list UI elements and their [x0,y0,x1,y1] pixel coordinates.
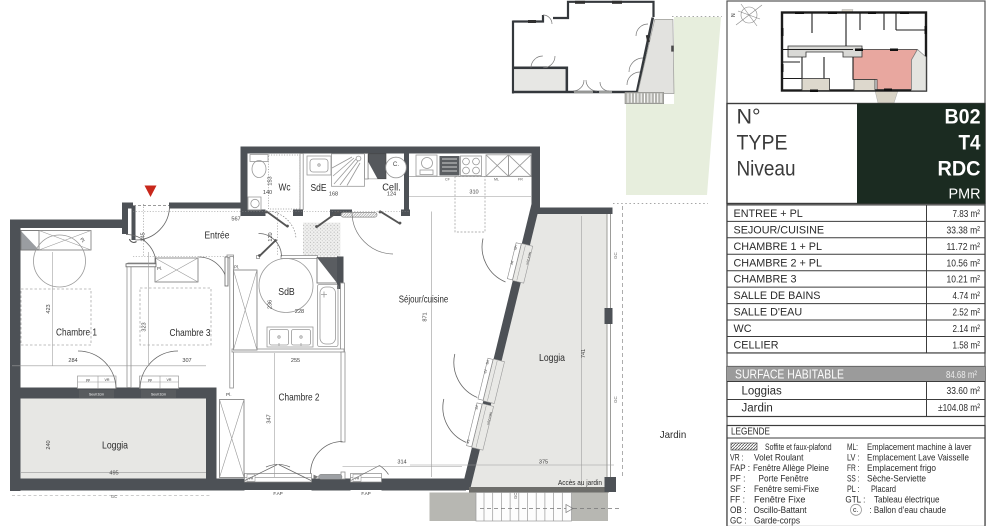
svg-text:236: 236 [268,300,274,309]
svg-text:Jardin: Jardin [660,429,687,441]
svg-text:375: 375 [539,460,548,466]
svg-text:SdE: SdE [311,182,327,194]
svg-text:F.AP: F.AP [361,491,370,496]
svg-text:Garde-corps: Garde-corps [754,515,800,525]
svg-text:Sèche-Serviette: Sèche-Serviette [867,474,926,484]
svg-text:LEGENDE: LEGENDE [731,426,770,438]
svg-text:GC: GC [613,251,618,259]
svg-text:±104.08 m²: ±104.08 m² [938,402,980,414]
svg-text:FR :: FR : [847,463,860,473]
svg-text:VR: VR [513,245,518,251]
svg-text:Accès au jardin: Accès au jardin [558,478,602,487]
svg-text:F.AP: F.AP [273,491,282,496]
svg-text:Wc: Wc [279,182,291,194]
svg-text:84.68 m²: 84.68 m² [946,370,978,381]
svg-text:VR :: VR : [730,453,744,463]
svg-text:N°: N° [737,105,761,129]
svg-text:FF: FF [483,369,488,374]
svg-text:VR: VR [167,378,172,382]
svg-text:GC: GC [111,494,117,499]
svg-text:Emplacement Lave Vaisselle: Emplacement Lave Vaisselle [867,453,969,463]
svg-text:Placard: Placard [871,484,896,494]
svg-text:GC: GC [613,395,618,403]
svg-text:SALLE D'EAU: SALLE D'EAU [734,307,803,319]
svg-text:314: 314 [397,460,406,466]
svg-text:GC :: GC : [730,515,747,525]
svg-text:GC: GC [513,493,518,499]
svg-text:PMR: PMR [949,186,981,203]
svg-text:SS :: SS : [847,474,860,484]
svg-text:423: 423 [46,304,52,313]
svg-text:PF: PF [474,405,479,410]
svg-text:c.: c. [853,507,859,514]
svg-text:LV :: LV : [847,453,860,463]
svg-text:10.56 m²: 10.56 m² [947,257,981,269]
svg-text:T4: T4 [959,131,981,155]
svg-text:153: 153 [268,176,274,185]
svg-text:10.21 m²: 10.21 m² [947,274,981,286]
svg-text:Pl.: Pl. [157,266,162,271]
svg-text:GTL :: GTL : [845,495,865,505]
svg-text:ML: ML [494,178,499,182]
svg-text:Chambre 1: Chambre 1 [56,327,97,339]
svg-text:Pl.: Pl. [226,392,232,398]
svg-text:N: N [731,13,737,17]
svg-text:4.74 m²: 4.74 m² [953,290,981,302]
svg-text:Séjour/cuisine: Séjour/cuisine [399,294,449,306]
svg-text:Seuil 2cm: Seuil 2cm [151,393,166,397]
svg-text:Fenêtre Fixe: Fenêtre Fixe [754,495,806,505]
svg-text:Volet Roulant: Volet Roulant [754,453,804,463]
svg-text:567: 567 [231,217,240,223]
svg-text:ENTREE + PL: ENTREE + PL [734,208,803,220]
svg-text:CELLIER: CELLIER [734,340,779,352]
svg-text:VR: VR [105,378,110,382]
svg-text:ML:: ML: [847,442,858,452]
svg-text:310: 310 [469,190,478,196]
svg-text:255: 255 [291,358,300,364]
svg-text:240: 240 [46,440,52,449]
svg-text:Tableau électrique: Tableau électrique [874,495,940,505]
svg-text:Loggia: Loggia [102,440,128,452]
svg-text:495: 495 [109,471,118,477]
svg-text:FAP :: FAP : [730,463,750,473]
svg-text:: Ballon d’eau chaude: : Ballon d’eau chaude [870,505,947,515]
svg-text:2.14 m²: 2.14 m² [953,323,981,335]
svg-text:CHAMBRE 3: CHAMBRE 3 [734,274,797,286]
svg-text:CHAMBRE 1 + PL: CHAMBRE 1 + PL [734,241,823,253]
svg-text:SURFACE HABITABLE: SURFACE HABITABLE [735,368,844,382]
svg-text:Niveau: Niveau [737,157,796,181]
svg-text:228: 228 [295,309,304,315]
svg-text:140: 140 [263,190,272,196]
svg-text:307: 307 [182,358,191,364]
svg-text:Cell.: Cell. [382,182,401,194]
svg-text:SF :: SF : [730,484,746,494]
svg-text:pp: pp [86,378,90,382]
svg-text:Pl.: Pl. [234,265,239,270]
svg-text:VR: VR [485,359,490,365]
svg-text:RDC: RDC [938,157,981,181]
svg-text:741: 741 [581,349,587,358]
svg-text:347: 347 [267,414,273,423]
svg-text:7.83 m²: 7.83 m² [953,208,981,220]
svg-text:1.58 m²: 1.58 m² [953,340,981,352]
svg-text:145: 145 [141,232,147,241]
svg-text:Chambre 2: Chambre 2 [279,392,320,404]
svg-text:OB :: OB : [730,505,747,515]
svg-text:PL :: PL : [847,484,860,494]
svg-text:TYPE: TYPE [737,131,788,155]
svg-text:FR: FR [518,178,523,182]
svg-text:168: 168 [329,192,338,198]
svg-text:Emplacement frigo: Emplacement frigo [867,463,936,473]
svg-text:CHAMBRE 2 + PL: CHAMBRE 2 + PL [734,257,823,269]
svg-text:Fenêtre Allège Pleine: Fenêtre Allège Pleine [753,463,829,473]
svg-text:120: 120 [268,232,274,241]
svg-text:Emplacement machine à laver: Emplacement machine à laver [867,442,972,452]
svg-text:Jardin: Jardin [742,403,773,415]
svg-text:SdB: SdB [278,286,295,298]
svg-text:11.72 m²: 11.72 m² [947,241,981,253]
svg-text:33.60 m²: 33.60 m² [947,385,981,397]
svg-text:Fenêtre semi-Fixe: Fenêtre semi-Fixe [754,484,819,494]
svg-text:FF :: FF : [730,495,745,505]
svg-text:C.: C. [393,161,399,168]
svg-text:2.52 m²: 2.52 m² [953,307,981,319]
svg-text:323: 323 [142,322,148,331]
svg-text:284: 284 [68,358,77,364]
svg-text:B02: B02 [945,105,981,129]
svg-text:CF: CF [445,178,451,182]
svg-text:Chambre 3: Chambre 3 [170,327,211,339]
svg-text:871: 871 [423,312,429,321]
svg-text:SEJOUR/CUISINE: SEJOUR/CUISINE [734,224,825,236]
svg-text:Loggias: Loggias [742,386,783,398]
svg-text:SALLE DE BAINS: SALLE DE BAINS [734,290,821,302]
svg-text:Porte Fenêtre: Porte Fenêtre [759,474,809,484]
svg-text:Loggia: Loggia [539,352,565,364]
svg-text:Entrée: Entrée [205,230,230,242]
svg-text:Seuil 2cm: Seuil 2cm [89,393,104,397]
svg-text:Oscillo-Battant: Oscillo-Battant [754,505,807,515]
svg-text:pp: pp [148,378,152,382]
svg-text:Soffite et faux-plafond: Soffite et faux-plafond [765,442,832,452]
svg-text:SF: SF [465,439,470,444]
svg-text:PF :: PF : [730,474,746,484]
svg-text:WC: WC [734,323,752,335]
svg-text:PF: PF [509,260,514,265]
svg-text:33.38 m²: 33.38 m² [947,224,981,236]
